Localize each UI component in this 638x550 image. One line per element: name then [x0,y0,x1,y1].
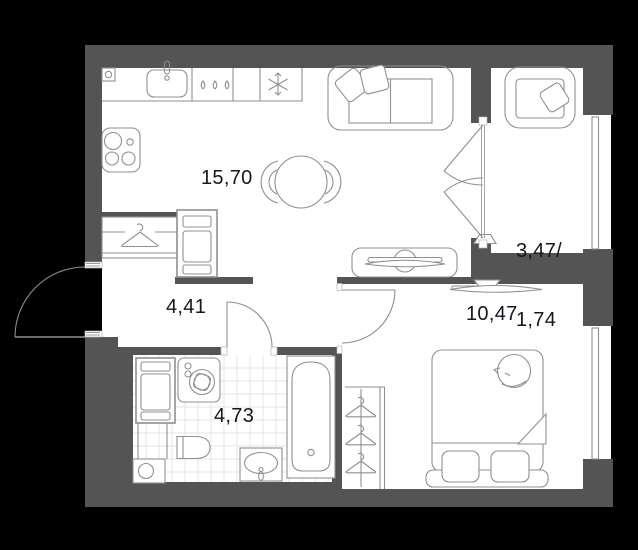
wall-right-top [583,45,613,115]
floor-plan: 15,70 4,41 4,73 10,47 3,47/ 1,74 [0,0,638,550]
kitchen-living-area-label: 15,70 [201,167,253,190]
bathroom-door-gap [225,347,272,355]
wall-hallway-band [175,277,253,284]
hallway-area-label: 4,41 [166,296,206,319]
wall-closet-partition [102,212,177,217]
washing-machine-icon [178,358,220,402]
wall-bathroom-top-right [272,347,342,355]
wall-living-bedroom-divider [337,277,473,284]
door-swing-icon [15,267,85,337]
wall-right-mid [583,249,613,326]
wall-balcony-divider-top [471,45,491,123]
entrance-door-icon [15,262,102,337]
wall-bottom-right [340,489,613,507]
bedroom-area-label: 10,47 [466,303,518,326]
bedroom-door-gap [337,290,342,347]
wall-left-upper [85,45,102,262]
wall-bottom-left [85,482,340,507]
bedroom-window-strip [583,326,611,459]
water-heater-icon [133,459,165,483]
balcony-door-gap [471,123,491,240]
bathroom-area-label: 4,73 [214,405,254,428]
cushion-icon [359,64,389,94]
wall-bathroom-top-left [102,347,225,355]
balcony-area-label: 3,47/ 1,74 [516,194,562,378]
wash-basin-icon [240,448,282,481]
balcony-area-reduced: 1,74 [516,309,562,332]
balcony-area-total: 3,47/ [516,240,562,263]
balcony-window-strip [583,115,611,249]
pillow-icon [491,451,529,482]
bathtub-icon [287,356,335,478]
toilet-icon [177,437,210,459]
pillow-icon [442,451,479,482]
wall-right-bottom [583,459,613,507]
